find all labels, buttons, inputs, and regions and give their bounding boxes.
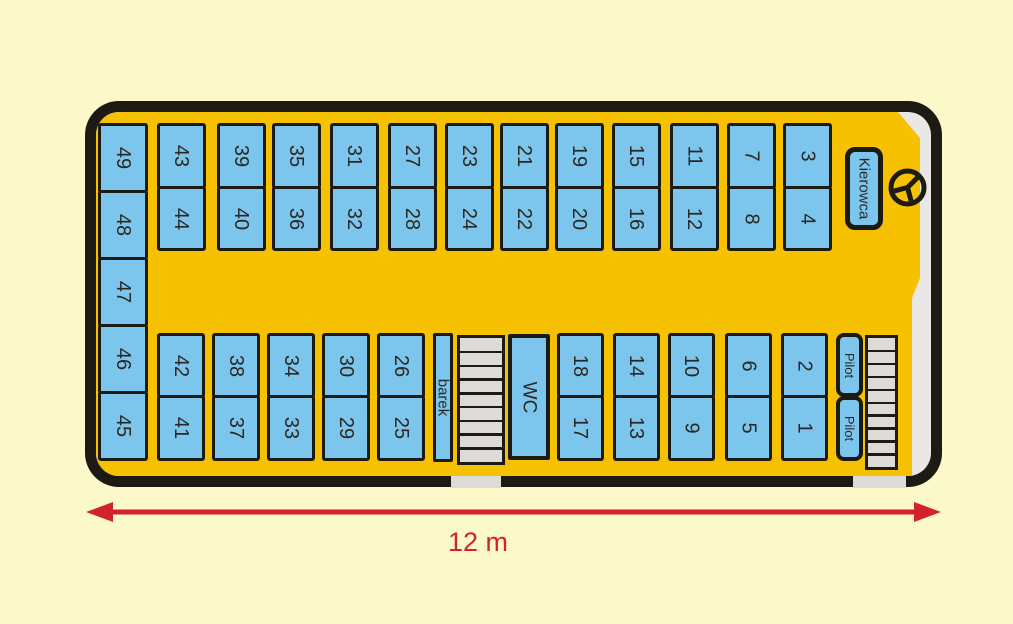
dimension-label: 12 m bbox=[0, 527, 956, 558]
seat-32: 32 bbox=[330, 186, 379, 251]
stair-step bbox=[460, 406, 502, 409]
wc-cabin: WC bbox=[508, 334, 550, 460]
seat-label: 31 bbox=[345, 145, 365, 167]
stair-step bbox=[868, 389, 895, 392]
seat-label: 43 bbox=[172, 145, 192, 167]
seat-34: 34 bbox=[267, 333, 315, 398]
seat-label: 6 bbox=[739, 360, 759, 371]
seat-label: 2 bbox=[795, 360, 815, 371]
seat-label: 5 bbox=[739, 422, 759, 433]
minibar-label: barek bbox=[436, 379, 451, 417]
seat-28: 28 bbox=[388, 186, 437, 251]
seat-label: 45 bbox=[113, 415, 133, 437]
seat-label: 7 bbox=[742, 150, 762, 161]
seat-5: 5 bbox=[725, 395, 772, 461]
seat-label: 14 bbox=[627, 354, 647, 376]
stair-step bbox=[460, 351, 502, 354]
stair-step bbox=[460, 365, 502, 368]
seat-7: 7 bbox=[727, 123, 776, 189]
seat-label: 18 bbox=[571, 354, 591, 376]
seat-24: 24 bbox=[445, 186, 494, 251]
pilot-seat-label: Pilot bbox=[843, 416, 856, 441]
seat-label: 47 bbox=[113, 281, 133, 303]
bus-seating-diagram: 4948474645434439403536313227282324212219… bbox=[0, 0, 1013, 624]
seat-label: 39 bbox=[232, 145, 252, 167]
stair-step bbox=[868, 350, 895, 353]
seat-18: 18 bbox=[557, 333, 604, 398]
seat-label: 1 bbox=[795, 422, 815, 433]
seat-30: 30 bbox=[322, 333, 370, 398]
seat-11: 11 bbox=[670, 123, 719, 189]
seat-43: 43 bbox=[157, 123, 206, 189]
seat-19: 19 bbox=[555, 123, 604, 189]
stair-step bbox=[868, 414, 895, 417]
pilot-seat-2: Pilot bbox=[836, 396, 863, 461]
seat-49: 49 bbox=[98, 123, 148, 193]
stair-step bbox=[460, 447, 502, 450]
seat-label: 44 bbox=[172, 207, 192, 229]
seat-12: 12 bbox=[670, 186, 719, 251]
seat-label: 22 bbox=[515, 207, 535, 229]
seat-13: 13 bbox=[613, 395, 660, 461]
seat-label: 34 bbox=[281, 354, 301, 376]
stair-step bbox=[868, 453, 895, 456]
seat-4: 4 bbox=[783, 186, 832, 251]
seat-2: 2 bbox=[781, 333, 828, 398]
seat-label: 26 bbox=[391, 354, 411, 376]
seat-15: 15 bbox=[612, 123, 661, 189]
seat-33: 33 bbox=[267, 395, 315, 461]
seat-45: 45 bbox=[98, 391, 148, 461]
seat-label: 20 bbox=[570, 207, 590, 229]
seat-23: 23 bbox=[445, 123, 494, 189]
stair-step bbox=[868, 427, 895, 430]
seat-label: 19 bbox=[570, 145, 590, 167]
seat-label: 30 bbox=[336, 354, 356, 376]
seat-1: 1 bbox=[781, 395, 828, 461]
seat-label: 28 bbox=[403, 207, 423, 229]
seat-40: 40 bbox=[217, 186, 266, 251]
stair-step bbox=[460, 420, 502, 423]
stair-step bbox=[460, 392, 502, 395]
seat-39: 39 bbox=[217, 123, 266, 189]
seat-35: 35 bbox=[272, 123, 321, 189]
seat-44: 44 bbox=[157, 186, 206, 251]
seat-label: 21 bbox=[515, 145, 535, 167]
seat-20: 20 bbox=[555, 186, 604, 251]
seat-label: 15 bbox=[627, 145, 647, 167]
seat-label: 10 bbox=[682, 354, 702, 376]
seat-label: 37 bbox=[226, 417, 246, 439]
stair-step bbox=[868, 402, 895, 405]
seat-9: 9 bbox=[668, 395, 715, 461]
seat-36: 36 bbox=[272, 186, 321, 251]
seat-label: 13 bbox=[627, 417, 647, 439]
seat-48: 48 bbox=[98, 190, 148, 260]
stair-step bbox=[868, 376, 895, 379]
seat-22: 22 bbox=[500, 186, 549, 251]
driver-seat: Kierowca bbox=[845, 147, 883, 230]
seat-42: 42 bbox=[157, 333, 205, 398]
seat-label: 36 bbox=[287, 207, 307, 229]
seat-6: 6 bbox=[725, 333, 772, 398]
steering-wheel-icon bbox=[888, 168, 927, 207]
seat-label: 27 bbox=[403, 145, 423, 167]
seat-46: 46 bbox=[98, 324, 148, 394]
seat-label: 4 bbox=[798, 213, 818, 224]
seat-47: 47 bbox=[98, 257, 148, 327]
seat-label: 9 bbox=[682, 422, 702, 433]
seat-41: 41 bbox=[157, 395, 205, 461]
wc-label: WC bbox=[520, 381, 539, 413]
stair-step bbox=[868, 440, 895, 443]
stair-step bbox=[868, 363, 895, 366]
seat-17: 17 bbox=[557, 395, 604, 461]
seat-label: 42 bbox=[171, 354, 191, 376]
seat-label: 16 bbox=[627, 207, 647, 229]
seat-label: 25 bbox=[391, 417, 411, 439]
seat-label: 8 bbox=[742, 213, 762, 224]
seat-27: 27 bbox=[388, 123, 437, 189]
stair-step bbox=[460, 378, 502, 381]
seat-label: 49 bbox=[113, 147, 133, 169]
minibar: barek bbox=[433, 333, 453, 462]
seat-label: 33 bbox=[281, 417, 301, 439]
seat-label: 48 bbox=[113, 214, 133, 236]
middle-door-opening bbox=[451, 476, 501, 488]
seat-label: 46 bbox=[113, 348, 133, 370]
seat-25: 25 bbox=[377, 395, 425, 461]
front-door-steps bbox=[865, 335, 898, 470]
front-door-opening bbox=[853, 476, 906, 488]
seat-26: 26 bbox=[377, 333, 425, 398]
seat-label: 11 bbox=[684, 146, 704, 167]
seat-21: 21 bbox=[500, 123, 549, 189]
seat-16: 16 bbox=[612, 186, 661, 251]
seat-label: 41 bbox=[171, 417, 191, 439]
seat-label: 40 bbox=[232, 207, 252, 229]
seat-label: 38 bbox=[226, 354, 246, 376]
stair-step bbox=[460, 433, 502, 436]
seat-31: 31 bbox=[330, 123, 379, 189]
seat-label: 32 bbox=[345, 207, 365, 229]
pilot-seat-label: Pilot bbox=[843, 352, 856, 377]
seat-8: 8 bbox=[727, 186, 776, 251]
seat-29: 29 bbox=[322, 395, 370, 461]
seat-label: 35 bbox=[287, 145, 307, 167]
seat-label: 29 bbox=[336, 417, 356, 439]
middle-door-steps bbox=[457, 335, 505, 465]
seat-10: 10 bbox=[668, 333, 715, 398]
seat-14: 14 bbox=[613, 333, 660, 398]
seat-label: 23 bbox=[460, 145, 480, 167]
seat-38: 38 bbox=[212, 333, 260, 398]
seat-label: 3 bbox=[798, 150, 818, 161]
seat-label: 17 bbox=[571, 417, 591, 439]
seat-37: 37 bbox=[212, 395, 260, 461]
seat-3: 3 bbox=[783, 123, 832, 189]
pilot-seat-1: Pilot bbox=[836, 333, 863, 397]
seat-label: 12 bbox=[685, 207, 705, 229]
driver-seat-label: Kierowca bbox=[857, 158, 872, 220]
seat-label: 24 bbox=[460, 207, 480, 229]
